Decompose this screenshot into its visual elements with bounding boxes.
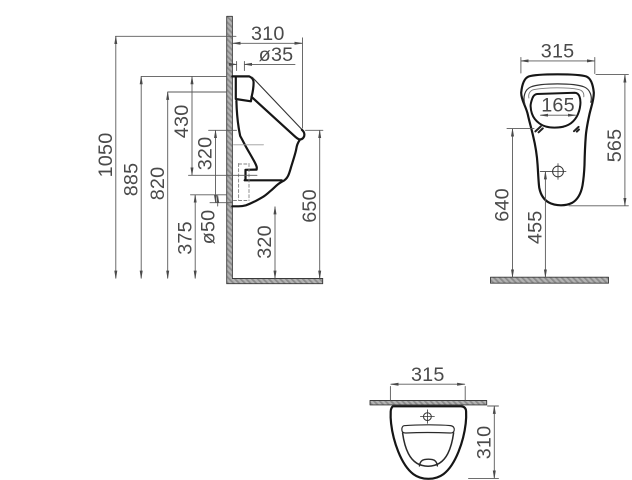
svg-text:310: 310 [473, 426, 495, 460]
svg-text:455: 455 [525, 210, 547, 244]
svg-text:320: 320 [195, 137, 217, 171]
svg-text:430: 430 [171, 105, 193, 139]
svg-text:565: 565 [604, 129, 626, 163]
svg-text:885: 885 [120, 163, 142, 197]
svg-text:310: 310 [251, 23, 285, 45]
svg-text:375: 375 [174, 221, 196, 255]
svg-text:320: 320 [254, 225, 276, 259]
svg-text:ø50: ø50 [198, 210, 220, 245]
svg-text:640: 640 [492, 188, 514, 222]
svg-text:165: 165 [541, 95, 575, 117]
svg-text:ø35: ø35 [259, 44, 294, 66]
svg-text:315: 315 [541, 40, 575, 62]
svg-text:1050: 1050 [95, 133, 117, 178]
svg-text:820: 820 [147, 167, 169, 201]
svg-text:650: 650 [299, 189, 321, 223]
svg-text:315: 315 [411, 364, 445, 386]
